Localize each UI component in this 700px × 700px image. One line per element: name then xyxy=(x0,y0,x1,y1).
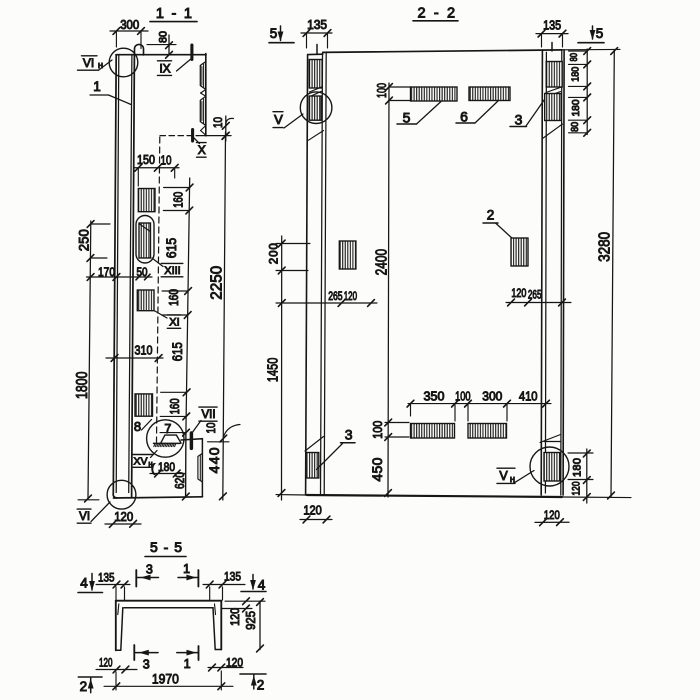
svg-text:XI: XI xyxy=(169,316,179,328)
svg-text:350: 350 xyxy=(424,390,445,404)
svg-text:X: X xyxy=(198,143,206,157)
svg-text:620: 620 xyxy=(173,472,187,489)
svg-text:410: 410 xyxy=(519,390,538,404)
svg-text:5: 5 xyxy=(403,110,411,126)
svg-text:180: 180 xyxy=(569,67,581,82)
svg-text:2400: 2400 xyxy=(374,249,391,276)
svg-text:4: 4 xyxy=(258,577,266,592)
svg-text:VII: VII xyxy=(201,409,215,421)
svg-text:120: 120 xyxy=(344,291,357,303)
svg-text:3280: 3280 xyxy=(596,232,613,262)
svg-text:3: 3 xyxy=(345,427,353,443)
svg-text:5: 5 xyxy=(270,26,278,41)
svg-text:160: 160 xyxy=(168,398,182,414)
svg-text:2 - 2: 2 - 2 xyxy=(418,6,456,22)
svg-text:VI: VI xyxy=(79,511,90,523)
svg-text:615: 615 xyxy=(164,238,179,258)
svg-text:160: 160 xyxy=(172,192,186,208)
svg-text:1: 1 xyxy=(183,562,190,576)
svg-text:300: 300 xyxy=(120,18,139,32)
svg-text:10: 10 xyxy=(204,422,218,433)
svg-text:IX: IX xyxy=(159,61,170,75)
svg-text:100: 100 xyxy=(370,421,385,439)
svg-text:1: 1 xyxy=(93,79,101,94)
svg-text:120: 120 xyxy=(571,482,583,496)
svg-text:2: 2 xyxy=(80,679,88,694)
svg-text:10: 10 xyxy=(211,117,225,128)
svg-text:160: 160 xyxy=(167,289,181,306)
svg-text:135: 135 xyxy=(543,19,561,33)
svg-text:200: 200 xyxy=(268,243,280,264)
svg-text:7: 7 xyxy=(164,422,171,436)
svg-text:135: 135 xyxy=(98,571,115,585)
svg-text:V: V xyxy=(274,112,283,127)
svg-text:120: 120 xyxy=(114,510,133,524)
svg-text:2: 2 xyxy=(257,677,265,692)
svg-text:80: 80 xyxy=(570,122,581,132)
svg-text:180: 180 xyxy=(570,99,582,116)
svg-text:120: 120 xyxy=(228,608,242,626)
svg-text:XIII: XIII xyxy=(164,265,181,277)
svg-text:120: 120 xyxy=(511,288,526,300)
svg-text:450: 450 xyxy=(369,457,385,481)
svg-text:2250: 2250 xyxy=(208,266,225,300)
svg-text:VI: VI xyxy=(83,56,94,70)
svg-text:5 - 5: 5 - 5 xyxy=(150,539,182,555)
svg-text:80: 80 xyxy=(569,53,580,62)
svg-text:V: V xyxy=(499,469,508,483)
svg-text:440: 440 xyxy=(206,447,222,473)
svg-text:615: 615 xyxy=(170,342,185,361)
svg-text:XV: XV xyxy=(133,456,147,468)
svg-text:3: 3 xyxy=(143,658,150,672)
svg-text:120: 120 xyxy=(99,656,113,670)
svg-text:8: 8 xyxy=(134,419,141,434)
svg-text:310: 310 xyxy=(135,344,153,358)
svg-text:925: 925 xyxy=(243,611,258,630)
svg-text:120: 120 xyxy=(303,504,321,518)
svg-text:2: 2 xyxy=(487,207,495,222)
svg-text:3: 3 xyxy=(515,112,523,128)
svg-text:1 - 1: 1 - 1 xyxy=(156,6,192,22)
svg-text:3: 3 xyxy=(146,563,153,577)
svg-text:5: 5 xyxy=(596,26,604,41)
svg-text:1800: 1800 xyxy=(74,371,91,399)
svg-text:1970: 1970 xyxy=(152,672,179,687)
svg-text:1: 1 xyxy=(184,657,191,671)
svg-text:1450: 1450 xyxy=(264,358,281,383)
svg-text:150: 150 xyxy=(137,153,155,167)
svg-text:10: 10 xyxy=(161,154,172,168)
svg-text:100: 100 xyxy=(375,83,389,98)
svg-text:300: 300 xyxy=(482,390,502,404)
svg-text:4: 4 xyxy=(80,576,88,591)
svg-text:6: 6 xyxy=(460,109,468,125)
svg-text:135: 135 xyxy=(224,570,241,584)
svg-text:265: 265 xyxy=(328,291,342,303)
svg-text:80: 80 xyxy=(157,31,169,43)
svg-text:180: 180 xyxy=(571,458,583,477)
svg-text:250: 250 xyxy=(76,229,92,251)
